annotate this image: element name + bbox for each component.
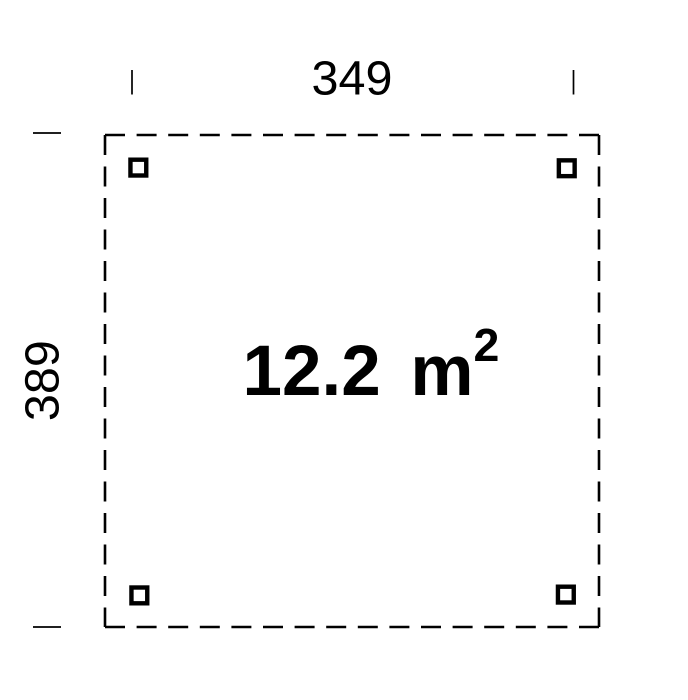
svg-text:12.2 m2: 12.2 m2 [243,319,500,411]
svg-text:389: 389 [16,340,70,421]
svg-text:349: 349 [312,51,393,105]
